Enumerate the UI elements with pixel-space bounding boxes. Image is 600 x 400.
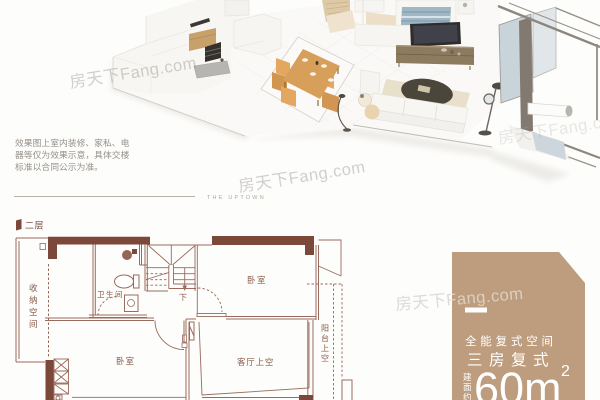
svg-text:面: 面 bbox=[463, 382, 472, 392]
svg-text:2: 2 bbox=[561, 363, 570, 380]
svg-text:建: 建 bbox=[463, 372, 472, 382]
svg-text:60m: 60m bbox=[474, 363, 562, 400]
svg-text:全能复式空间: 全能复式空间 bbox=[465, 334, 557, 348]
svg-text:约: 约 bbox=[463, 392, 472, 400]
